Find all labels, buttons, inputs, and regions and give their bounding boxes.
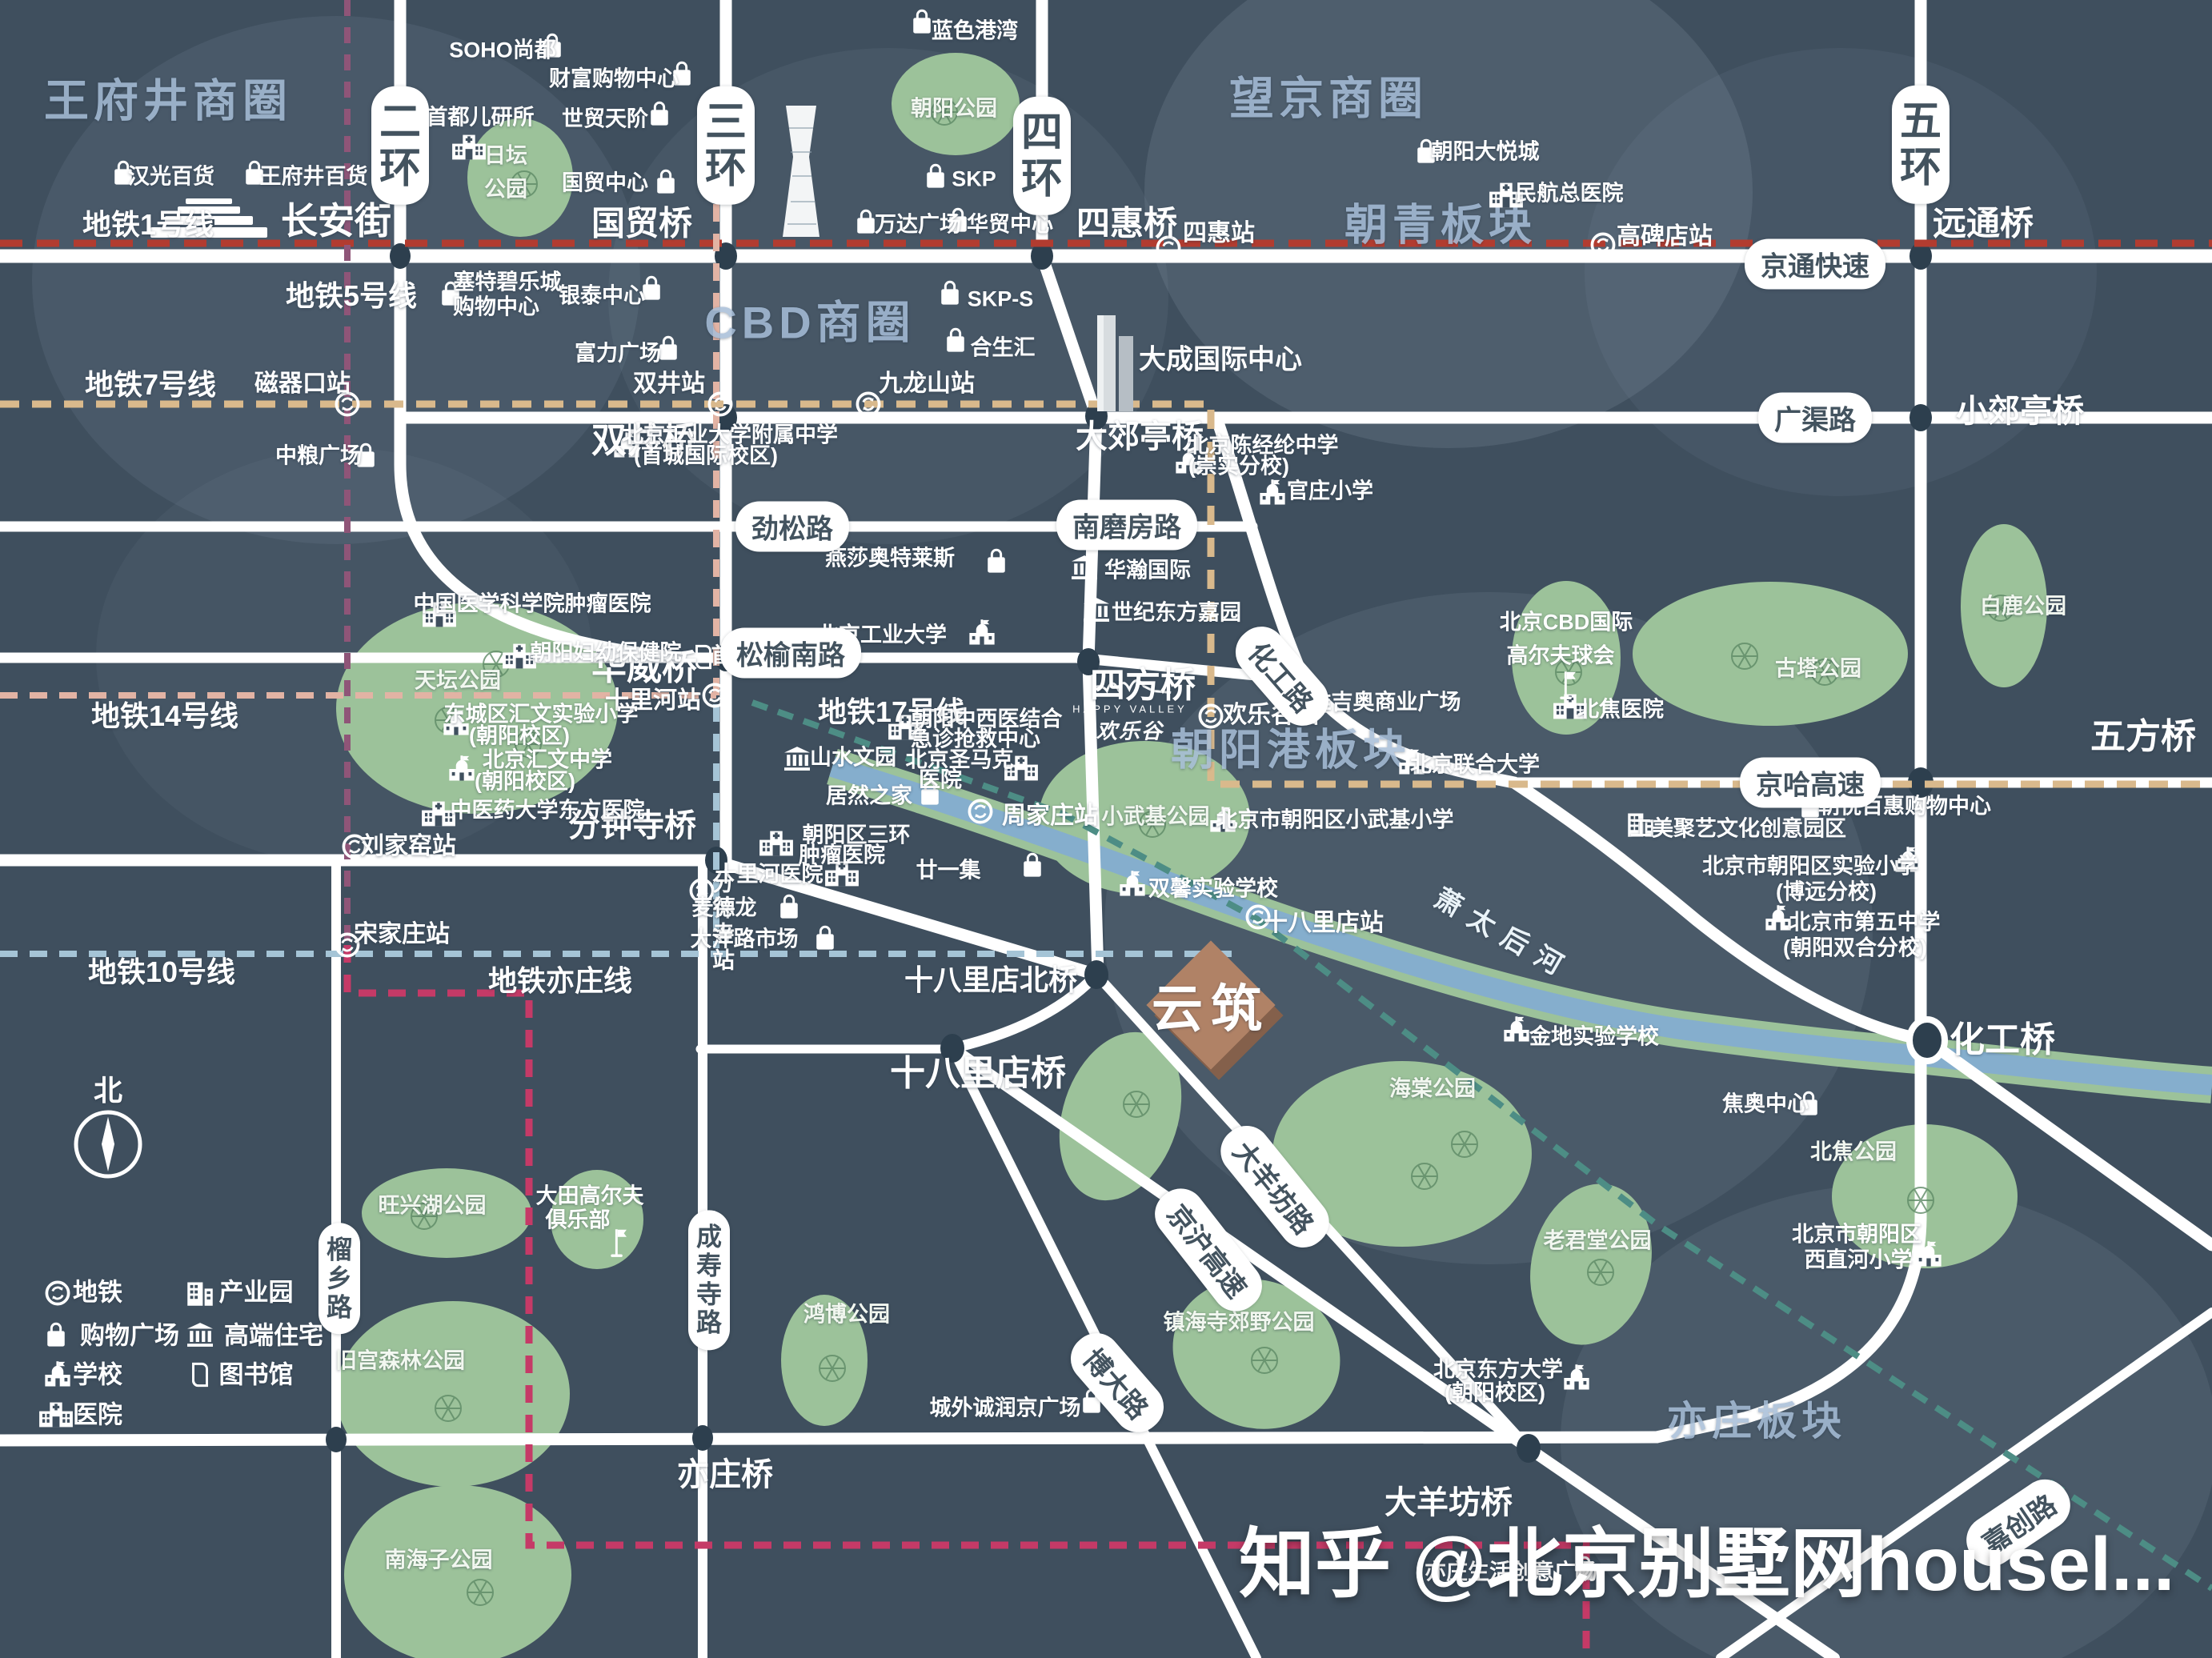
legend-label-医院: 医院 [73, 1395, 122, 1431]
station-label-周家庄站: 周家庄站 [1002, 795, 1098, 831]
legend-metro-icon [44, 1280, 71, 1307]
project-name: 云筑 [1152, 968, 1270, 1042]
station-label-宋家庄站: 宋家庄站 [354, 914, 450, 949]
road-pill-char: 榴 [327, 1235, 352, 1264]
poi-label-北京工业大学附属中学: (首城国际校区) [634, 439, 778, 470]
poi-label-北京市朝阳区西直河小学: 西直河小学 [1805, 1243, 1913, 1274]
park-label-鸿博公园: 鸿博公园 [803, 1297, 890, 1328]
legend-label-购物广场: 购物广场 [80, 1316, 179, 1352]
school-icon-官庄小学 [1257, 479, 1288, 507]
bag-icon-SKP-S [938, 280, 962, 307]
road-pill-京通快速: 京通快速 [1745, 239, 1885, 290]
metro-station-icon-九龙山站 [855, 390, 882, 418]
citic-tower-illustration [783, 106, 819, 237]
beijing-project-location-map: 云筑 HAPPY VALLEY 欢乐谷 萧太后河 北 知乎 @北京别墅网hous… [0, 0, 2212, 1658]
poi-label-大洋路市场: 大洋路市场 [691, 922, 799, 953]
bridge-label-四方桥: 四方桥 [1090, 656, 1196, 707]
poi-label-北京陈经纶中学: (崇实分校) [1188, 449, 1289, 480]
dacheng-towers-illustration [1097, 315, 1133, 411]
park-label-老君堂公园: 老君堂公园 [1544, 1223, 1652, 1255]
bridge-label-小郊亭桥: 小郊亭桥 [1956, 385, 2084, 431]
poi-label-首都儿研所: 首都儿研所 [427, 100, 535, 131]
poi-label-北京市第五中学: (朝阳双合分校) [1783, 931, 1927, 962]
legend-label-产业园: 产业园 [219, 1272, 294, 1308]
poi-label-北京联合大学: 北京联合大学 [1410, 747, 1540, 779]
station-label-磁器口站: 磁器口站 [254, 363, 351, 398]
road-pill-京哈高速: 京哈高速 [1740, 758, 1881, 808]
bridge-label-四惠桥: 四惠桥 [1076, 197, 1177, 246]
poi-label-北京CBD国际高尔夫球会: 北京CBD国际 [1500, 605, 1633, 636]
poi-label-银泰中心: 银泰中心 [559, 278, 645, 310]
legend-label-学校: 学校 [73, 1355, 122, 1391]
district-label-CBD商圈: CBD商圈 [704, 287, 915, 352]
compass [76, 1112, 140, 1176]
metro-station-icon-周家庄站 [967, 798, 994, 825]
metro-station-icon-双井站 [707, 390, 734, 418]
poi-label-北京市朝阳区实验小学: (博远分校) [1776, 875, 1877, 906]
bag-icon-麦德龙 [777, 894, 801, 921]
poi-label-燕莎奥特莱斯: 燕莎奥特莱斯 [825, 541, 955, 572]
poi-label-王府井百货: 王府井百货 [260, 159, 368, 190]
poi-label-北京CBD国际高尔夫球会: 高尔夫球会 [1507, 639, 1615, 670]
road-pill-char: 寿 [696, 1252, 722, 1280]
station-label-十八里店站: 十八里店站 [1264, 903, 1384, 938]
poi-label-朝阳妇幼保健院: 朝阳妇幼保健院 [531, 635, 682, 667]
road-pill-char: 路 [696, 1309, 722, 1338]
poi-label-维吉奥商业广场: 维吉奥商业广场 [1310, 685, 1461, 716]
station-label-高碑店站: 高碑店站 [1617, 216, 1713, 251]
poi-label-万达广场: 万达广场 [875, 207, 961, 238]
legend-bag-icon [44, 1322, 68, 1349]
park-label-日坛公园: 日坛 [484, 138, 527, 170]
metro-station-icon-高碑店站 [1589, 231, 1617, 258]
legend-residence-icon [185, 1322, 215, 1348]
watermark: 知乎 @北京别墅网housel... [1239, 1503, 2174, 1612]
station-label-四惠站: 四惠站 [1183, 213, 1255, 248]
poi-label-居然之家: 居然之家 [826, 779, 912, 810]
legend-library-icon [189, 1361, 211, 1388]
bridge-label-长安街: 长安街 [281, 192, 391, 245]
poi-label-合生汇: 合生汇 [971, 330, 1036, 362]
poi-label-双馨实验学校: 双馨实验学校 [1148, 871, 1278, 903]
ring-road-pill-五环: 五环 [1892, 86, 1950, 204]
road-pill-松榆南路: 松榆南路 [720, 628, 861, 679]
metro-line-label-地铁5号线: 地铁5号线 [286, 273, 417, 314]
poi-label-朝阳大悦城: 朝阳大悦城 [1432, 134, 1540, 166]
residence-icon-华瀚国际 [1069, 555, 1100, 580]
legend-label-高端住宅: 高端住宅 [224, 1316, 323, 1352]
ring-road-char: 环 [379, 146, 421, 192]
hospital-icon-首都儿研所 [451, 134, 487, 161]
bridge-label-十八里店北桥: 十八里店北桥 [904, 957, 1077, 999]
ring-road-char: 环 [705, 146, 747, 192]
ring-road-pill-二环: 二环 [371, 86, 429, 205]
poi-label-北京市朝阳区小武基小学: 北京市朝阳区小武基小学 [1216, 803, 1454, 834]
legend-school-icon [42, 1360, 73, 1389]
school-icon-金地实验学校 [1501, 1015, 1532, 1044]
road-pill-榴乡路: 榴乡路 [319, 1223, 360, 1334]
poi-label-SKP-S: SKP-S [968, 287, 1034, 312]
poi-label-中粮广场: 中粮广场 [275, 439, 362, 470]
park-label-日坛公园: 公园 [484, 172, 527, 203]
park-label-旺兴湖公园: 旺兴湖公园 [379, 1188, 487, 1219]
park-label-白鹿公园: 白鹿公园 [1980, 589, 2066, 620]
compass-north-label: 北 [94, 1067, 122, 1109]
poi-label-北京汇文中学: (朝阳校区) [475, 764, 575, 795]
poi-label-国贸中心: 国贸中心 [562, 166, 648, 197]
bag-icon-燕莎奥特莱斯 [984, 548, 1008, 575]
poi-label-SOHO尚都: SOHO尚都 [449, 33, 556, 64]
road-pill-char: 寺 [696, 1280, 722, 1309]
metro-station-icon-十里河站 [701, 682, 728, 709]
district-label-望京商圈: 望京商圈 [1229, 63, 1428, 128]
flag-icon-北京CBD国际高尔夫球会 [1553, 670, 1577, 700]
huagong-bridge-dot [1909, 1019, 1945, 1061]
poi-label-塞特碧乐城购物中心: 购物中心 [453, 290, 539, 321]
ring-road-char: 环 [1900, 145, 1942, 191]
road-pill-char: 乡 [327, 1264, 352, 1293]
road-pill-char: 路 [327, 1293, 352, 1322]
road-pill-成寿寺路: 成寿寺路 [688, 1210, 730, 1350]
poi-label-焦奥中心: 焦奥中心 [1722, 1087, 1809, 1118]
poi-label-十里河医院: 十里河医院 [715, 857, 823, 888]
school-icon-北京工业大学 [967, 619, 997, 647]
bag-icon-大洋路市场 [813, 925, 837, 952]
poi-label-北京东方大学: (朝阳校区) [1445, 1376, 1545, 1407]
residence-icon-山水文园 [782, 746, 812, 771]
metro-line-label-地铁14号线: 地铁14号线 [91, 693, 238, 735]
residence-icon-世纪东方嘉园 [1081, 597, 1112, 623]
poi-label-工美聚艺文化创意园区: 工美聚艺文化创意园区 [1630, 811, 1846, 843]
ring-road-char: 四 [1021, 110, 1063, 156]
poi-label-蓝色港湾: 蓝色港湾 [932, 14, 1018, 45]
poi-label-民航总医院: 民航总医院 [1516, 176, 1624, 207]
road-pill-劲松路: 劲松路 [735, 502, 849, 552]
ring-road-char: 环 [1021, 156, 1063, 202]
bridge-label-五方桥: 五方桥 [2090, 707, 2196, 759]
poi-label-金地实验学校: 金地实验学校 [1529, 1019, 1659, 1051]
bridge-label-远通桥: 远通桥 [1933, 197, 2034, 246]
bag-icon-世贸天阶 [647, 101, 671, 128]
legend-industry-icon [186, 1280, 214, 1307]
bridge-label-国贸桥: 国贸桥 [591, 197, 692, 246]
park-label-旧宫森林公园: 旧宫森林公园 [335, 1344, 465, 1375]
poi-label-北焦医院: 北焦医院 [1577, 692, 1664, 723]
poi-label-财富购物中心: 财富购物中心 [549, 62, 679, 93]
poi-label-世贸天阶: 世贸天阶 [562, 102, 648, 133]
hospital-icon-朝阳区三环肿瘤医院 [759, 830, 794, 857]
bridge-label-化工桥: 化工桥 [1950, 1011, 2055, 1062]
school-icon-北京东方大学 [1561, 1364, 1592, 1392]
road-pill-广渠路: 广渠路 [1758, 393, 1872, 443]
metro-line-label-地铁7号线: 地铁7号线 [85, 362, 216, 403]
station-label-刘家窑站: 刘家窑站 [360, 826, 456, 861]
legend-label-地铁: 地铁 [73, 1272, 122, 1308]
park-label-小武基公园: 小武基公园 [1102, 799, 1210, 831]
poi-label-SKP: SKP [952, 167, 996, 192]
poi-label-世纪东方嘉园: 世纪东方嘉园 [1112, 595, 1241, 627]
station-label-双井站: 双井站 [633, 363, 705, 398]
district-label-亦庄板块: 亦庄板块 [1667, 1389, 1846, 1447]
bag-icon-国贸中心 [654, 169, 678, 196]
bridge-label-大郊亭桥: 大郊亭桥 [1076, 410, 1204, 457]
bag-icon-廿一集 [1020, 852, 1044, 879]
poi-label-麦德龙: 麦德龙 [692, 891, 757, 922]
poi-label-大成国际中心: 大成国际中心 [1139, 338, 1302, 377]
legend-hospital-icon [38, 1401, 74, 1428]
park-label-南海子公园: 南海子公园 [385, 1543, 493, 1574]
school-icon-北京汇文中学 [447, 755, 477, 783]
park-label-海棠公园: 海棠公园 [1389, 1071, 1476, 1103]
bag-icon-SKP [924, 163, 948, 190]
ring-road-char: 三 [705, 99, 747, 146]
school-icon-双馨实验学校 [1117, 870, 1148, 899]
road-pill-南磨房路: 南磨房路 [1056, 500, 1197, 551]
ring-road-char: 二 [379, 99, 421, 146]
poi-label-汉光百货: 汉光百货 [128, 159, 214, 190]
legend-label-图书馆: 图书馆 [219, 1355, 294, 1391]
ring-road-pill-三环: 三环 [697, 86, 755, 205]
road-pill-char: 成 [696, 1223, 722, 1252]
bag-icon-蓝色港湾 [910, 9, 934, 36]
metro-station-icon-欢乐谷站 [1197, 703, 1224, 730]
ring-road-char: 五 [1900, 98, 1942, 145]
happy-valley-zh: 欢乐谷 [1072, 715, 1188, 745]
park-label-朝阳公园: 朝阳公园 [911, 91, 997, 122]
metro-line-label-地铁10号线: 地铁10号线 [88, 949, 235, 991]
poi-label-山水文园: 山水文园 [810, 740, 896, 771]
bag-icon-合生汇 [944, 327, 968, 354]
bridge-label-十八里店桥: 十八里店桥 [890, 1044, 1066, 1095]
poi-label-廿一集: 廿一集 [916, 853, 981, 884]
metro-line-label-地铁1号线: 地铁1号线 [82, 202, 214, 243]
poi-label-华瀚国际: 华瀚国际 [1104, 553, 1191, 584]
poi-label-中医药大学东方医院: 中医药大学东方医院 [451, 793, 645, 824]
poi-label-城外诚润京广场: 城外诚润京广场 [930, 1391, 1081, 1422]
park-label-天坛公园: 天坛公园 [415, 663, 501, 695]
park-label-古塔公园: 古塔公园 [1775, 651, 1861, 683]
poi-label-中国医学科学院肿瘤医院: 中国医学科学院肿瘤医院 [414, 587, 651, 618]
district-label-王府井商圈: 王府井商圈 [44, 66, 292, 130]
metro-line-label-地铁亦庄线: 地铁亦庄线 [488, 958, 632, 999]
bridge-label-亦庄桥: 亦庄桥 [677, 1448, 773, 1495]
poi-label-北京圣马克医院: 医院 [919, 763, 962, 794]
poi-label-大田高尔夫俱乐部: 俱乐部 [546, 1203, 611, 1234]
poi-label-官庄小学: 官庄小学 [1287, 474, 1373, 505]
park-label-北焦公园: 北焦公园 [1810, 1135, 1897, 1166]
station-label-九龙山站: 九龙山站 [879, 363, 975, 398]
poi-label-富力广场: 富力广场 [575, 336, 661, 367]
ring-road-pill-四环: 四环 [1013, 97, 1071, 215]
